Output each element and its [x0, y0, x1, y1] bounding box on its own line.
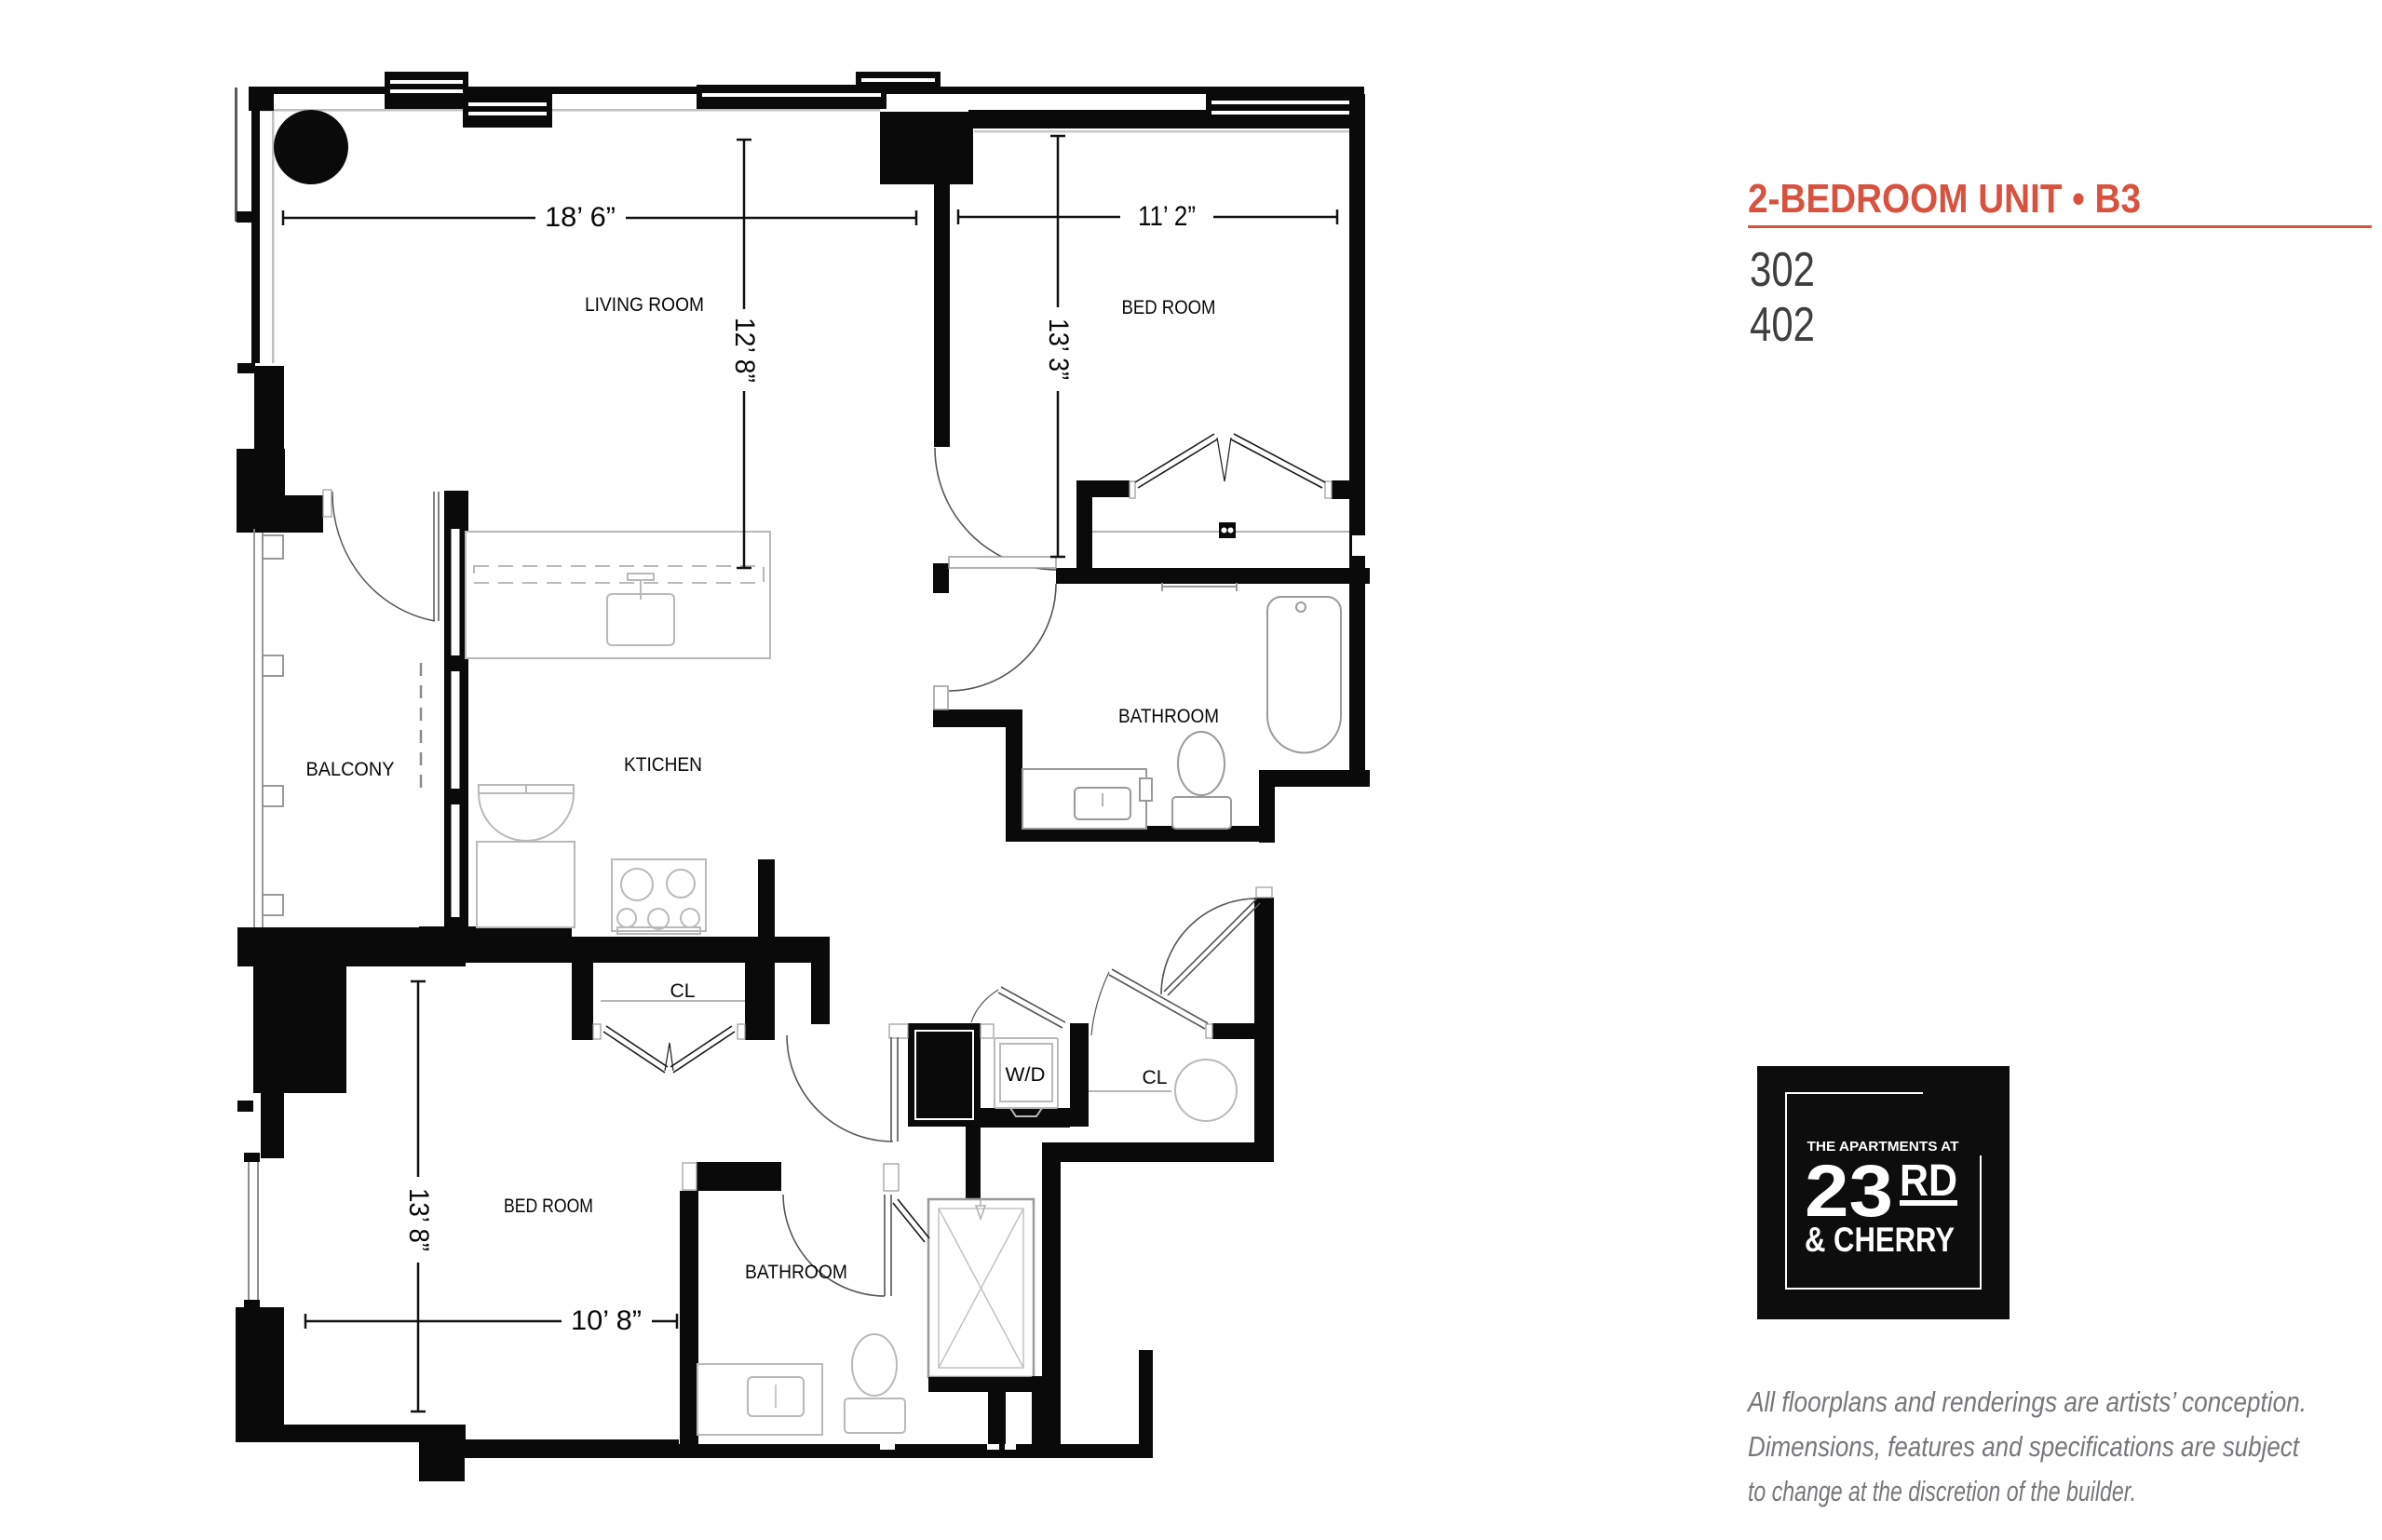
- svg-text:to change at the discretion of: to change at the discretion of the build…: [1748, 1475, 2136, 1507]
- svg-text:13’ 3”: 13’ 3”: [1043, 318, 1074, 380]
- svg-text:BATHROOM: BATHROOM: [745, 1262, 847, 1283]
- svg-text:Dimensions, features and speci: Dimensions, features and specifications …: [1748, 1430, 2300, 1463]
- svg-text:402: 402: [1750, 298, 1815, 352]
- svg-text:13’ 8”: 13’ 8”: [403, 1188, 434, 1251]
- svg-text:LIVING ROOM: LIVING ROOM: [585, 294, 704, 316]
- svg-text:CL: CL: [670, 980, 696, 1002]
- svg-text:CL: CL: [1143, 1067, 1168, 1088]
- svg-text:W/D: W/D: [1006, 1064, 1046, 1086]
- svg-text:BATHROOM: BATHROOM: [1118, 706, 1219, 727]
- svg-text:10’ 8”: 10’ 8”: [571, 1305, 642, 1336]
- svg-text:302: 302: [1750, 243, 1815, 297]
- svg-text:BED ROOM: BED ROOM: [504, 1196, 593, 1217]
- svg-text:KTICHEN: KTICHEN: [624, 754, 702, 776]
- svg-text:23: 23: [1805, 1149, 1893, 1232]
- svg-text:18’ 6”: 18’ 6”: [545, 202, 616, 233]
- svg-text:& CHERRY: & CHERRY: [1805, 1221, 1955, 1259]
- svg-text:11’ 2”: 11’ 2”: [1138, 201, 1196, 232]
- svg-text:2-BEDROOM UNIT • B3: 2-BEDROOM UNIT • B3: [1748, 176, 2141, 222]
- svg-text:12’ 8”: 12’ 8”: [729, 317, 760, 383]
- svg-text:RD: RD: [1900, 1156, 1957, 1206]
- svg-text:BALCONY: BALCONY: [306, 759, 395, 780]
- svg-text:BED ROOM: BED ROOM: [1122, 297, 1216, 318]
- svg-text:All floorplans and renderings: All floorplans and renderings are artist…: [1746, 1385, 2307, 1418]
